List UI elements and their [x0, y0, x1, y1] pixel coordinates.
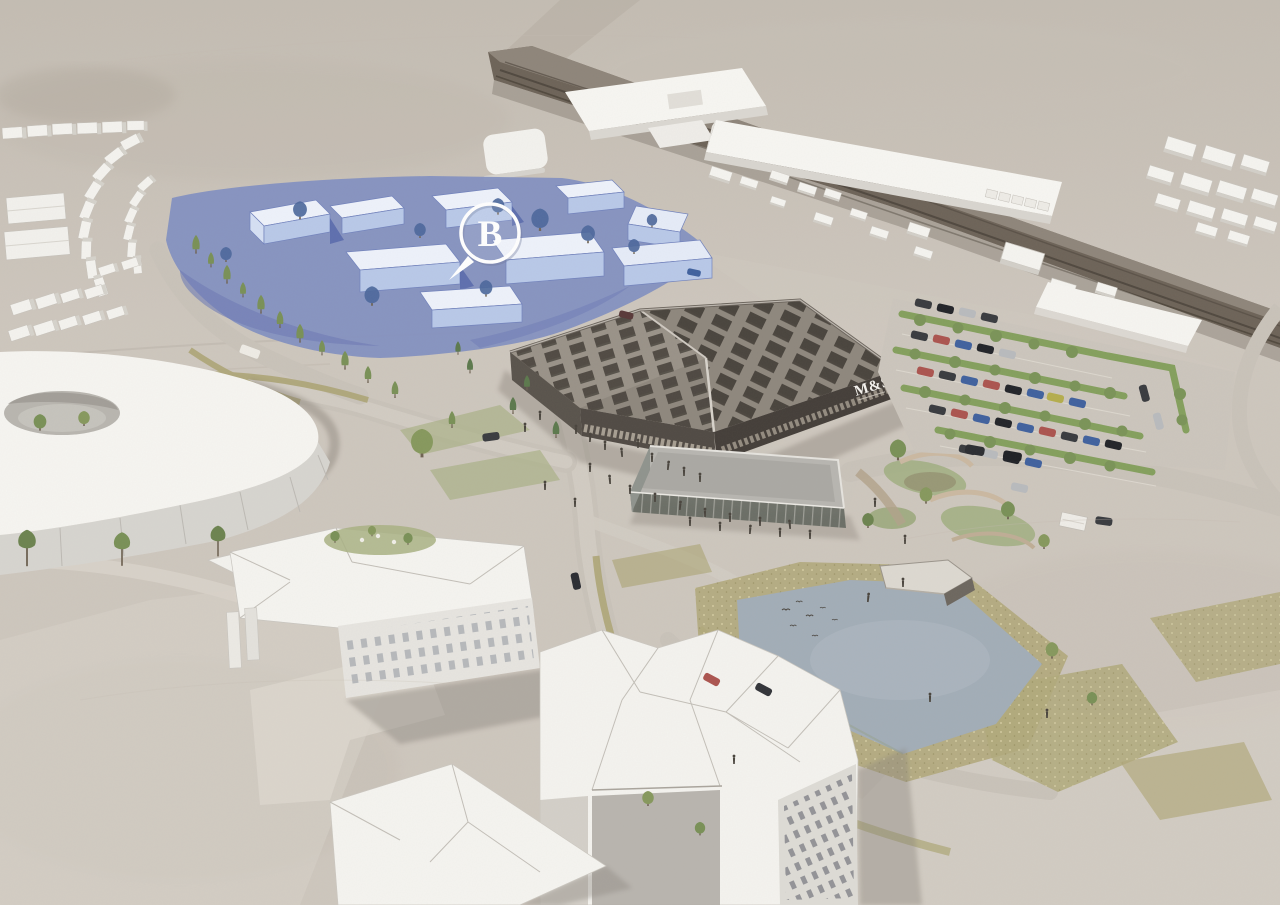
masterplan-render: M&S: [0, 0, 1280, 905]
masterplan-svg: M&S: [0, 0, 1280, 905]
paper-grain: [0, 0, 1280, 905]
